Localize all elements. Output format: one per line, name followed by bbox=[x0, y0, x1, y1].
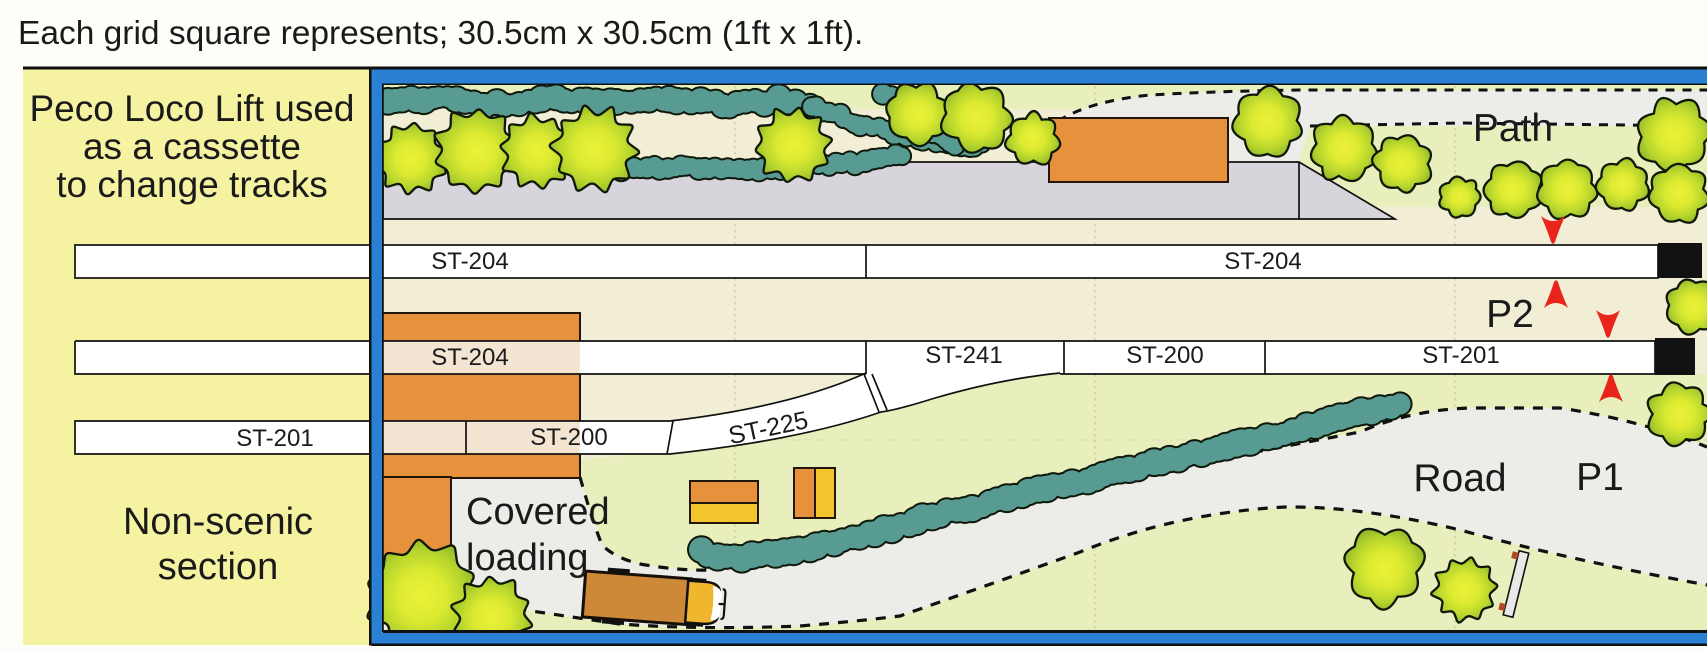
svg-text:as a cassette: as a cassette bbox=[83, 126, 301, 167]
svg-text:ST-200: ST-200 bbox=[530, 424, 607, 451]
svg-text:Road: Road bbox=[1413, 457, 1506, 500]
svg-text:Path: Path bbox=[1473, 107, 1553, 150]
svg-text:Peco Loco Lift used: Peco Loco Lift used bbox=[30, 88, 355, 129]
svg-text:ST-204: ST-204 bbox=[431, 344, 508, 371]
svg-text:loading: loading bbox=[466, 537, 589, 579]
svg-text:ST-204: ST-204 bbox=[431, 248, 508, 275]
svg-text:ST-201: ST-201 bbox=[1422, 342, 1499, 369]
svg-text:P2: P2 bbox=[1486, 293, 1534, 336]
svg-text:ST-241: ST-241 bbox=[925, 342, 1002, 369]
svg-text:to change tracks: to change tracks bbox=[56, 164, 327, 205]
svg-text:section: section bbox=[158, 546, 278, 588]
svg-text:ST-201: ST-201 bbox=[236, 425, 313, 452]
svg-text:ST-200: ST-200 bbox=[1126, 342, 1203, 369]
svg-text:Non-scenic: Non-scenic bbox=[123, 501, 313, 543]
svg-text:P1: P1 bbox=[1576, 456, 1624, 499]
svg-text:Each grid square represents; 3: Each grid square represents; 30.5cm x 30… bbox=[18, 15, 863, 52]
svg-text:ST-204: ST-204 bbox=[1224, 248, 1301, 275]
svg-text:Covered: Covered bbox=[466, 491, 610, 533]
